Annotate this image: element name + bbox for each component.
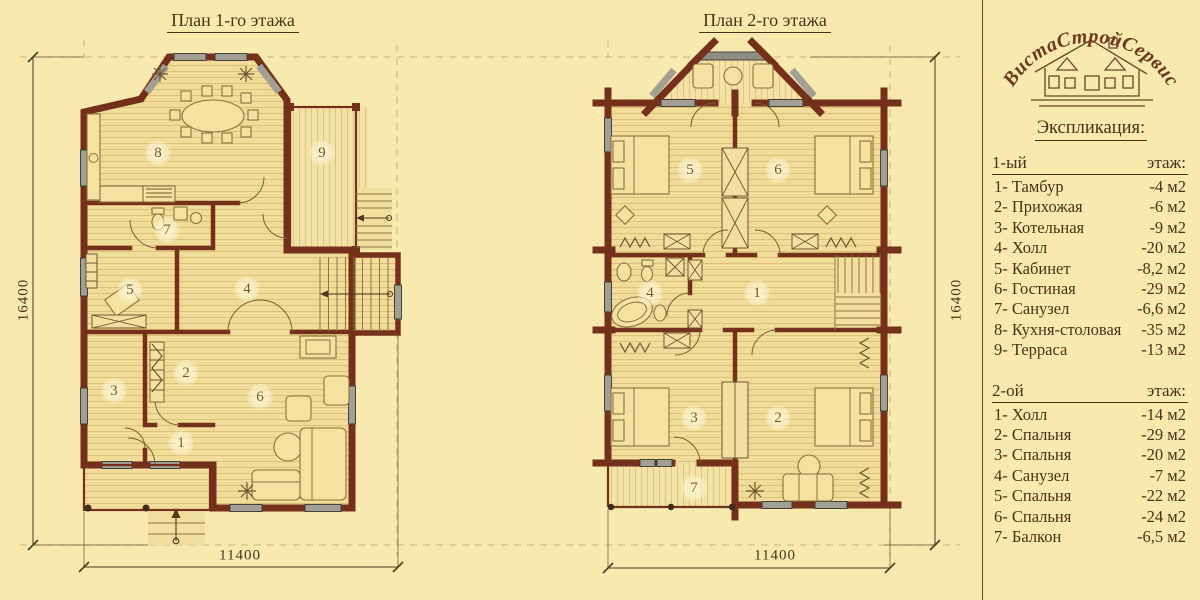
room-area: -4 м2 bbox=[1149, 177, 1186, 197]
room-area: -24 м2 bbox=[1141, 507, 1186, 527]
plan1-room-6-label: 6 bbox=[247, 384, 273, 410]
room-name: 6- Гостиная bbox=[994, 279, 1076, 299]
plan1-room-1-label: 1 bbox=[168, 430, 194, 456]
list-item: 7- Санузел-6,6 м2 bbox=[992, 299, 1188, 319]
plan1-room-4-label: 4 bbox=[234, 276, 260, 302]
room-area: -35 м2 bbox=[1141, 320, 1186, 340]
floor2-label: 2-ой bbox=[992, 381, 1024, 401]
list-item: 8- Кухня-столовая-35 м2 bbox=[992, 320, 1188, 340]
logo-text: ВистаСтройСервис bbox=[998, 25, 1183, 91]
room-name: 4- Санузел bbox=[994, 466, 1069, 486]
list-item: 3- Спальня-20 м2 bbox=[992, 445, 1188, 465]
room-name: 3- Котельная bbox=[994, 218, 1084, 238]
legend-divider bbox=[982, 0, 983, 600]
list-item: 2- Спальня-29 м2 bbox=[992, 425, 1188, 445]
room-area: -29 м2 bbox=[1141, 279, 1186, 299]
plan1-width-dimension: 11400 bbox=[219, 548, 261, 565]
room-area: -7 м2 bbox=[1149, 466, 1186, 486]
room-name: 4- Холл bbox=[994, 238, 1047, 258]
list-item: 7- Балкон-6,5 м2 bbox=[992, 527, 1188, 547]
floor1-header: 1-ый этаж: bbox=[992, 153, 1188, 175]
room-area: -6 м2 bbox=[1149, 197, 1186, 217]
list-item: 5- Спальня-22 м2 bbox=[992, 486, 1188, 506]
plan2-room-4-label: 4 bbox=[637, 280, 663, 306]
closet-ladder bbox=[150, 342, 164, 402]
room-area: -20 м2 bbox=[1141, 238, 1186, 258]
room-name: 2- Прихожая bbox=[994, 197, 1083, 217]
plan1-room-5-label: 5 bbox=[117, 277, 143, 303]
company-logo: ВистаСтройСервис bbox=[991, 2, 1191, 114]
room-area: -22 м2 bbox=[1141, 486, 1186, 506]
plan1-room-7-label: 7 bbox=[154, 217, 180, 243]
list-item: 6- Гостиная-29 м2 bbox=[992, 279, 1188, 299]
plan2-width-dimension: 11400 bbox=[754, 548, 796, 565]
plan1-height-dimension: 16400 bbox=[16, 279, 33, 322]
list-item: 6- Спальня-24 м2 bbox=[992, 507, 1188, 527]
floor2-label-right: этаж: bbox=[1147, 381, 1186, 401]
room-name: 8- Кухня-столовая bbox=[994, 320, 1121, 340]
room-area: -6,5 м2 bbox=[1137, 527, 1186, 547]
legend-heading: Экспликация: bbox=[990, 118, 1192, 141]
list-item: 1- Холл-14 м2 bbox=[992, 405, 1188, 425]
room-name: 9- Терраса bbox=[994, 340, 1067, 360]
plan2-room-5-label: 5 bbox=[677, 157, 703, 183]
floor-plan-2 bbox=[596, 42, 898, 517]
room-area: -13 м2 bbox=[1141, 340, 1186, 360]
svg-text:ВистаСтройСервис: ВистаСтройСервис bbox=[998, 25, 1183, 91]
plan2-room-3-label: 3 bbox=[681, 405, 707, 431]
legend-panel: ВистаСтройСервис Экспликация: 1-ый этаж:… bbox=[990, 0, 1192, 548]
list-item: 9- Терраса-13 м2 bbox=[992, 340, 1188, 360]
legend-heading-text: Экспликация: bbox=[1035, 118, 1147, 141]
plan1-room-2-label: 2 bbox=[173, 360, 199, 386]
list-item: 3- Котельная-9 м2 bbox=[992, 218, 1188, 238]
list-item: 2- Прихожая-6 м2 bbox=[992, 197, 1188, 217]
plan1-room-8-label: 8 bbox=[145, 140, 171, 166]
plan2-height-dimension: 16400 bbox=[949, 279, 966, 322]
floor1-label: 1-ый bbox=[992, 153, 1027, 173]
list-item: 5- Кабинет-8,2 м2 bbox=[992, 259, 1188, 279]
room-name: 2- Спальня bbox=[994, 425, 1071, 445]
room-area: -6,6 м2 bbox=[1137, 299, 1186, 319]
list-item: 4- Санузел-7 м2 bbox=[992, 466, 1188, 486]
floor2-header: 2-ой этаж: bbox=[992, 381, 1188, 403]
room-name: 1- Холл bbox=[994, 405, 1047, 425]
room-name: 5- Спальня bbox=[994, 486, 1071, 506]
room-name: 3- Спальня bbox=[994, 445, 1071, 465]
plan2-room-1-label: 1 bbox=[744, 280, 770, 306]
room-name: 1- Тамбур bbox=[994, 177, 1064, 197]
porch-floor bbox=[84, 465, 210, 510]
plan1-room-9-label: 9 bbox=[309, 140, 335, 166]
plan1-title: План 1-го этажа bbox=[167, 10, 299, 33]
room-area: -9 м2 bbox=[1149, 218, 1186, 238]
room-area: -14 м2 bbox=[1141, 405, 1186, 425]
room-name: 7- Балкон bbox=[994, 527, 1061, 547]
plan2-room-6-label: 6 bbox=[765, 157, 791, 183]
list-item: 4- Холл-20 м2 bbox=[992, 238, 1188, 258]
room-name: 7- Санузел bbox=[994, 299, 1069, 319]
plan2-title: План 2-го этажа bbox=[699, 10, 831, 33]
room-name: 6- Спальня bbox=[994, 507, 1071, 527]
floor1-label-right: этаж: bbox=[1147, 153, 1186, 173]
plan1-room-3-label: 3 bbox=[101, 378, 127, 404]
room-name: 5- Кабинет bbox=[994, 259, 1071, 279]
plan2-room-2-label: 2 bbox=[765, 405, 791, 431]
blueprint-page: План 1-го этажа План 2-го этажа 16400 11… bbox=[0, 0, 1200, 600]
terrace-floor bbox=[290, 107, 356, 250]
room-area: -29 м2 bbox=[1141, 425, 1186, 445]
list-item: 1- Тамбур-4 м2 bbox=[992, 177, 1188, 197]
plan2-room-7-label: 7 bbox=[681, 475, 707, 501]
balcony-floor bbox=[608, 463, 735, 507]
room-area: -20 м2 bbox=[1141, 445, 1186, 465]
room-area: -8,2 м2 bbox=[1137, 259, 1186, 279]
